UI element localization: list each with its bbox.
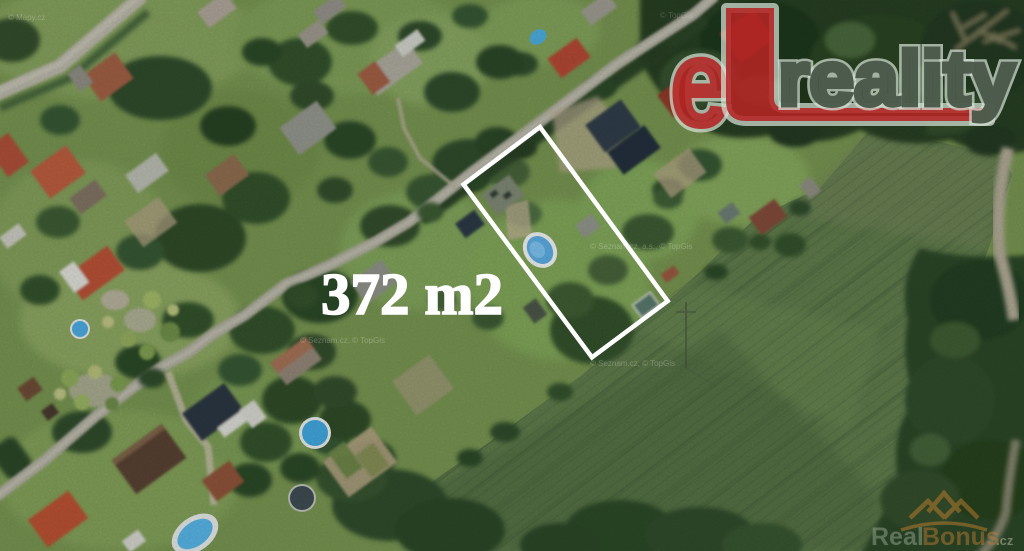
svg-text:reality: reality: [778, 36, 1015, 122]
svg-text:.cz: .cz: [996, 533, 1014, 548]
svg-text:372 m2: 372 m2: [321, 261, 503, 327]
svg-text:Bonus: Bonus: [922, 523, 1000, 551]
svg-text:© Seznam.cz, © TopGis: © Seznam.cz, © TopGis: [300, 336, 385, 345]
svg-text:© Seznam.cz, a.s., © TopGis: © Seznam.cz, a.s., © TopGis: [590, 242, 692, 251]
svg-text:© Mapy.cz: © Mapy.cz: [8, 13, 45, 22]
svg-text:Real: Real: [871, 523, 924, 551]
svg-text:© Seznam.cz, © TopGis: © Seznam.cz, © TopGis: [590, 359, 675, 368]
